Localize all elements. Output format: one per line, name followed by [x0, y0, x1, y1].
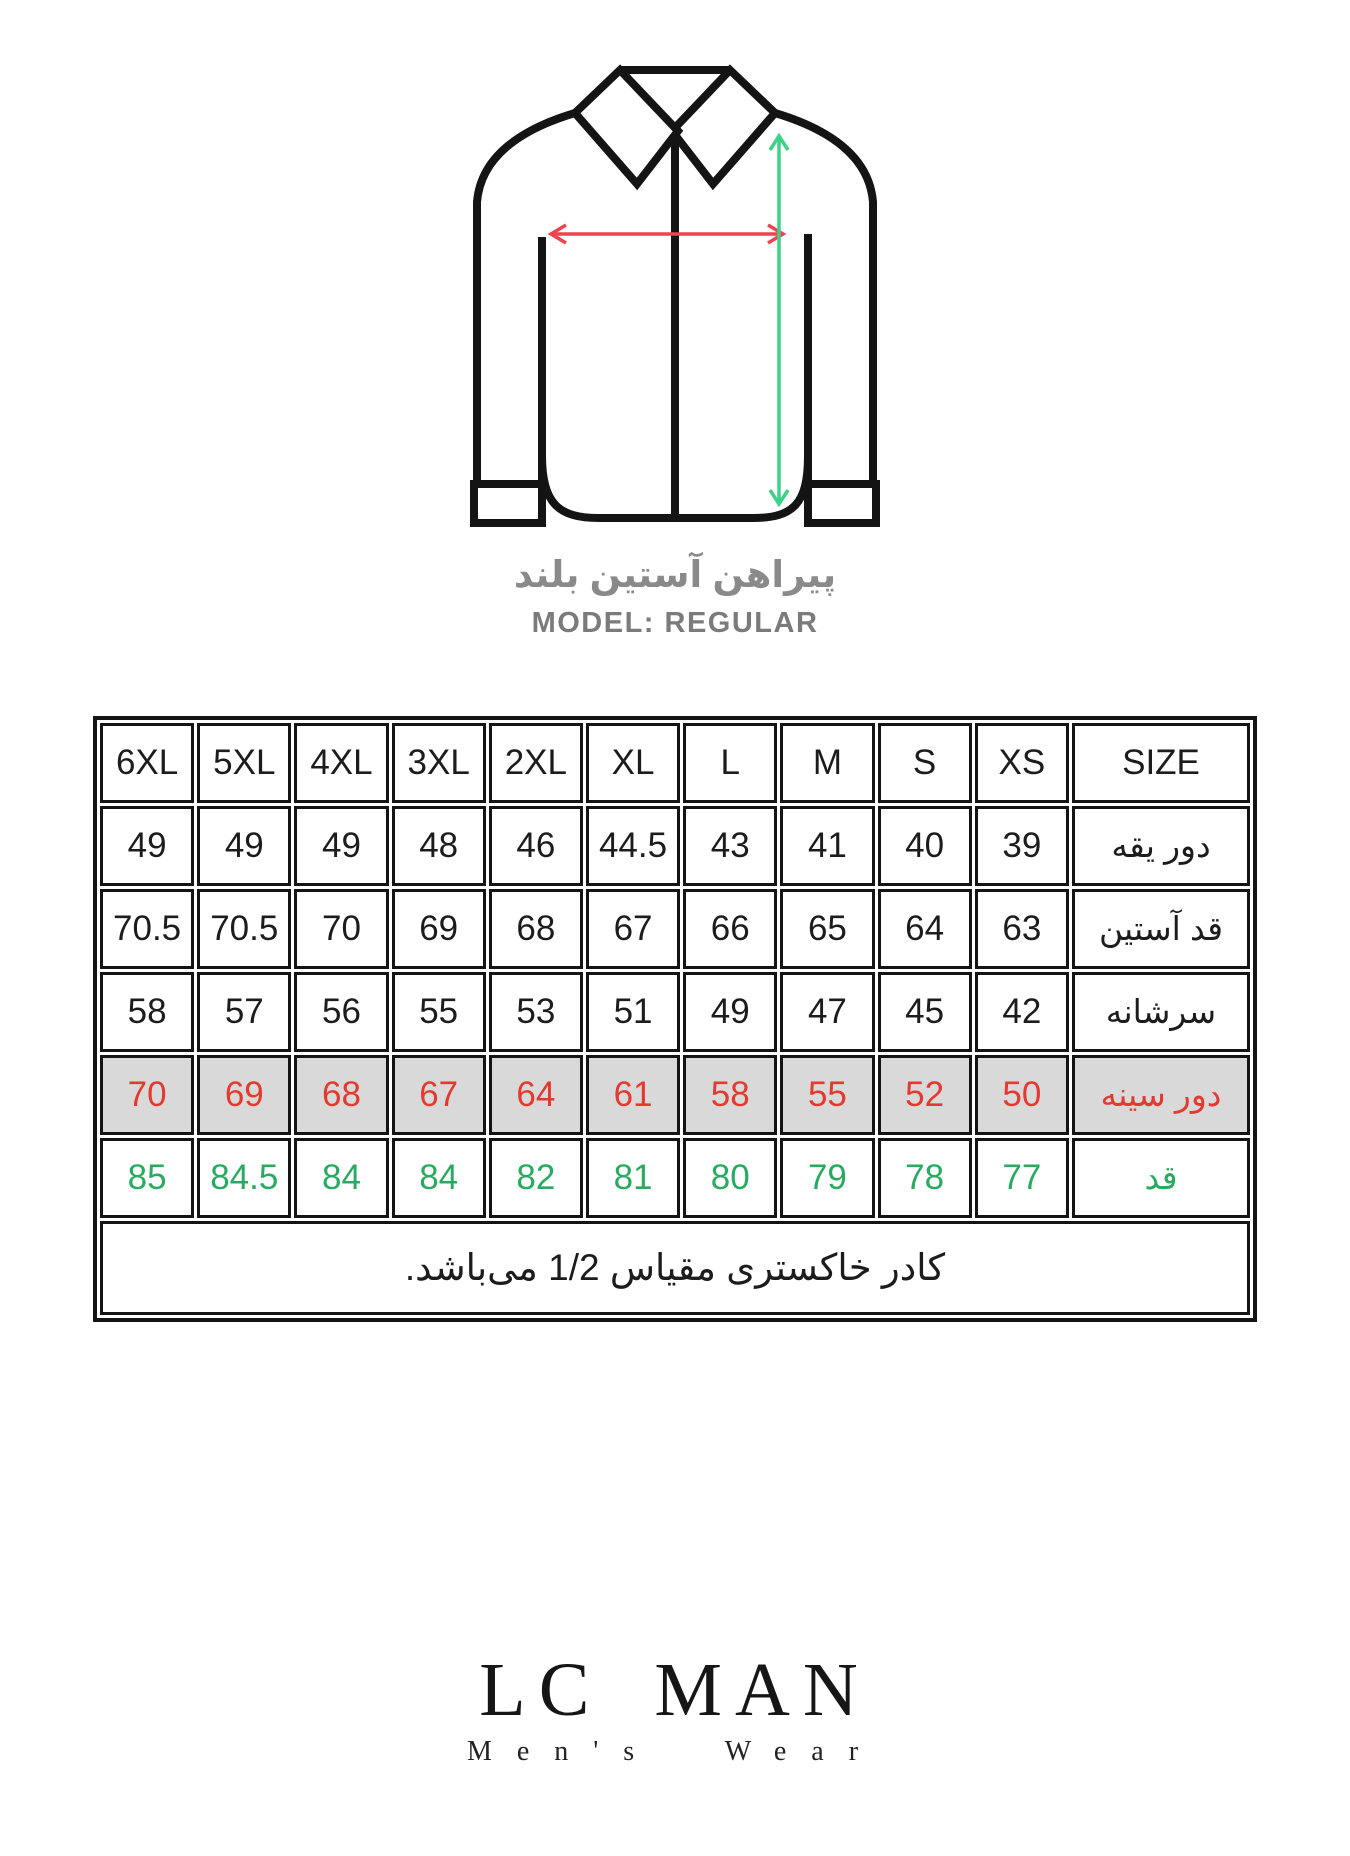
measurement-cell: 67	[392, 1055, 486, 1135]
measurement-cell: 42	[975, 972, 1069, 1052]
measurement-cell: 43	[683, 806, 777, 886]
measurement-cell: 69	[197, 1055, 291, 1135]
measurement-cell: 49	[294, 806, 388, 886]
measurement-cell: 58	[683, 1055, 777, 1135]
size-column-header: 6XL	[100, 723, 194, 803]
measurement-label: سرشانه	[1072, 972, 1250, 1052]
measurement-cell: 85	[100, 1138, 194, 1218]
left-cuff	[474, 484, 542, 523]
measurement-cell: 52	[878, 1055, 972, 1135]
measurement-cell: 67	[586, 889, 680, 969]
measurement-cell: 63	[975, 889, 1069, 969]
measurement-cell: 64	[489, 1055, 583, 1135]
measurement-cell: 77	[975, 1138, 1069, 1218]
measurement-row: 58575655535149474542سرشانه	[100, 972, 1250, 1052]
chest-width-arrow	[551, 225, 783, 243]
measurement-cell: 66	[683, 889, 777, 969]
brand-name: LC MAN	[0, 1652, 1350, 1728]
size-column-header: 4XL	[294, 723, 388, 803]
size-table-header-row: 6XL5XL4XL3XL2XLXLLMSXSSIZE	[100, 723, 1250, 803]
measurement-cell: 68	[489, 889, 583, 969]
measurement-cell: 44.5	[586, 806, 680, 886]
measurement-cell: 55	[392, 972, 486, 1052]
measurement-cell: 58	[100, 972, 194, 1052]
measurement-cell: 78	[878, 1138, 972, 1218]
measurement-cell: 47	[780, 972, 874, 1052]
measurement-cell: 56	[294, 972, 388, 1052]
measurement-cell: 70.5	[197, 889, 291, 969]
garment-title: پیراهن آستین بلند	[0, 554, 1350, 597]
brand-logo: LC MAN Men's Wear	[0, 1652, 1350, 1768]
measurement-cell: 70.5	[100, 889, 194, 969]
right-cuff	[808, 484, 876, 523]
model-label: MODEL: REGULAR	[0, 607, 1350, 640]
measurement-cell: 84	[294, 1138, 388, 1218]
measurement-cell: 81	[586, 1138, 680, 1218]
measurement-cell: 64	[878, 889, 972, 969]
size-table: 6XL5XL4XL3XL2XLXLLMSXSSIZE 494949484644.…	[93, 716, 1257, 1322]
measurement-cell: 45	[878, 972, 972, 1052]
measurement-cell: 57	[197, 972, 291, 1052]
shirt-figure: پیراهن آستین بلند MODEL: REGULAR	[0, 56, 1350, 640]
size-column-header: S	[878, 723, 972, 803]
shirt-diagram	[463, 56, 887, 528]
measurement-label: قد	[1072, 1138, 1250, 1218]
measurement-cell: 49	[100, 806, 194, 886]
measurement-cell: 80	[683, 1138, 777, 1218]
measurement-row: 70.570.57069686766656463قد آستین	[100, 889, 1250, 969]
measurement-cell: 49	[197, 806, 291, 886]
measurement-cell: 41	[780, 806, 874, 886]
measurement-label: قد آستین	[1072, 889, 1250, 969]
measurement-cell: 84.5	[197, 1138, 291, 1218]
shirt-outline	[474, 113, 876, 523]
measurement-cell: 40	[878, 806, 972, 886]
note-row: کادر خاکستری مقیاس 1/2 می‌باشد.	[100, 1221, 1250, 1315]
brand-subtitle: Men's Wear	[0, 1736, 1350, 1768]
measurement-cell: 55	[780, 1055, 874, 1135]
measurement-cell: 46	[489, 806, 583, 886]
size-column-header: M	[780, 723, 874, 803]
measurement-cell: 68	[294, 1055, 388, 1135]
measurement-row: 70696867646158555250دور سینه	[100, 1055, 1250, 1135]
measurement-row: 8584.58484828180797877قد	[100, 1138, 1250, 1218]
measurement-cell: 82	[489, 1138, 583, 1218]
measurement-cell: 49	[683, 972, 777, 1052]
measurement-label: دور یقه	[1072, 806, 1250, 886]
scale-note: کادر خاکستری مقیاس 1/2 می‌باشد.	[100, 1221, 1250, 1315]
measurement-cell: 53	[489, 972, 583, 1052]
size-column-header: XL	[586, 723, 680, 803]
measurement-cell: 50	[975, 1055, 1069, 1135]
measurement-cell: 70	[100, 1055, 194, 1135]
measurement-cell: 39	[975, 806, 1069, 886]
measurement-cell: 69	[392, 889, 486, 969]
size-column-header: XS	[975, 723, 1069, 803]
size-column-header: 2XL	[489, 723, 583, 803]
measurement-row: 494949484644.543414039دور یقه	[100, 806, 1250, 886]
size-column-header: 3XL	[392, 723, 486, 803]
measurement-cell: 79	[780, 1138, 874, 1218]
length-arrow	[770, 136, 788, 504]
size-column-header: 5XL	[197, 723, 291, 803]
size-column-header: SIZE	[1072, 723, 1250, 803]
measurement-cell: 65	[780, 889, 874, 969]
size-column-header: L	[683, 723, 777, 803]
measurement-cell: 48	[392, 806, 486, 886]
measurement-cell: 70	[294, 889, 388, 969]
measurement-cell: 84	[392, 1138, 486, 1218]
measurement-cell: 51	[586, 972, 680, 1052]
measurement-cell: 61	[586, 1055, 680, 1135]
measurement-label: دور سینه	[1072, 1055, 1250, 1135]
